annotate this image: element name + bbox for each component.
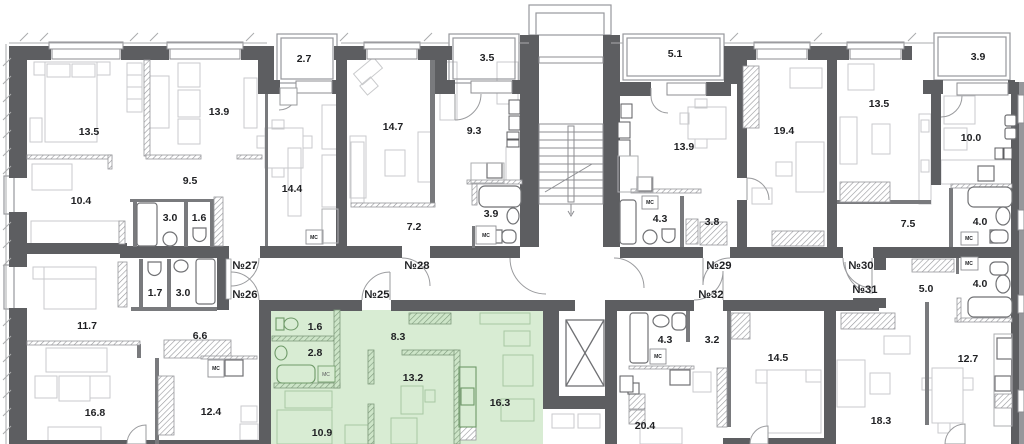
svg-text:МС: МС — [965, 261, 973, 267]
svg-text:МС: МС — [482, 233, 490, 239]
svg-text:13.9: 13.9 — [674, 141, 695, 153]
svg-text:МС: МС — [654, 354, 662, 360]
svg-text:3.9: 3.9 — [971, 51, 986, 63]
svg-text:1.7: 1.7 — [148, 287, 163, 299]
svg-text:13.2: 13.2 — [403, 372, 424, 384]
svg-text:№28: №28 — [404, 260, 429, 272]
svg-text:14.4: 14.4 — [282, 183, 303, 195]
svg-text:16.8: 16.8 — [85, 407, 106, 419]
svg-text:№27: №27 — [232, 260, 257, 272]
svg-text:3.5: 3.5 — [480, 52, 495, 64]
svg-text:13.9: 13.9 — [209, 106, 230, 118]
svg-text:№32: №32 — [698, 289, 723, 301]
svg-text:3.0: 3.0 — [176, 287, 191, 299]
svg-text:11.7: 11.7 — [77, 320, 97, 332]
svg-text:18.3: 18.3 — [871, 415, 892, 427]
svg-text:13.5: 13.5 — [79, 126, 100, 138]
svg-text:9.3: 9.3 — [467, 125, 482, 137]
svg-text:4.3: 4.3 — [658, 334, 673, 346]
svg-text:14.7: 14.7 — [383, 121, 404, 133]
svg-text:19.4: 19.4 — [774, 125, 795, 137]
svg-text:4.0: 4.0 — [973, 216, 988, 228]
svg-text:МС: МС — [965, 236, 973, 242]
svg-text:12.4: 12.4 — [201, 406, 222, 418]
svg-text:№31: №31 — [852, 284, 877, 296]
svg-text:20.4: 20.4 — [635, 420, 656, 432]
svg-text:10.0: 10.0 — [961, 132, 982, 144]
svg-text:9.5: 9.5 — [183, 175, 198, 187]
svg-text:7.2: 7.2 — [407, 221, 422, 233]
svg-text:6.6: 6.6 — [193, 330, 208, 342]
svg-text:2.8: 2.8 — [308, 347, 323, 359]
svg-text:4.0: 4.0 — [973, 278, 988, 290]
svg-text:7.5: 7.5 — [901, 218, 916, 230]
svg-text:МС: МС — [322, 372, 330, 378]
svg-text:10.9: 10.9 — [312, 427, 333, 439]
svg-text:1.6: 1.6 — [192, 212, 207, 224]
svg-text:5.0: 5.0 — [919, 283, 934, 295]
svg-text:№29: №29 — [706, 260, 731, 272]
svg-text:№30: №30 — [848, 260, 873, 272]
svg-text:3.8: 3.8 — [705, 216, 720, 228]
svg-text:1.6: 1.6 — [308, 321, 323, 333]
svg-text:5.1: 5.1 — [668, 48, 683, 60]
svg-text:МС: МС — [310, 235, 318, 241]
svg-text:16.3: 16.3 — [490, 397, 511, 409]
svg-text:12.7: 12.7 — [958, 353, 979, 365]
svg-text:МС: МС — [646, 200, 654, 206]
svg-text:МС: МС — [212, 366, 220, 372]
svg-text:2.7: 2.7 — [297, 53, 312, 65]
svg-text:10.4: 10.4 — [71, 195, 92, 207]
svg-text:8.3: 8.3 — [391, 331, 406, 343]
svg-text:14.5: 14.5 — [768, 352, 789, 364]
svg-text:3.9: 3.9 — [484, 208, 499, 220]
svg-text:№25: №25 — [364, 289, 389, 301]
svg-text:4.3: 4.3 — [653, 213, 668, 225]
svg-text:13.5: 13.5 — [869, 98, 890, 110]
svg-text:3.2: 3.2 — [705, 334, 720, 346]
svg-text:3.0: 3.0 — [163, 212, 178, 224]
svg-text:№26: №26 — [232, 289, 257, 301]
